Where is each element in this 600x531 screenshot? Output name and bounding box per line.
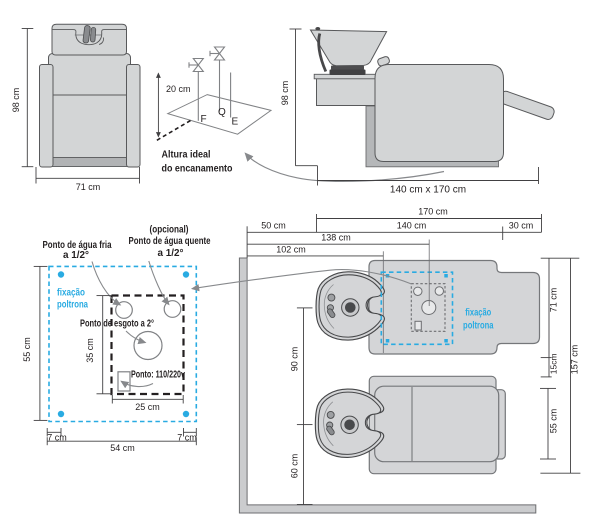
svg-text:102 cm: 102 cm xyxy=(276,244,306,254)
svg-text:poltrona: poltrona xyxy=(463,321,494,332)
svg-text:35 cm: 35 cm xyxy=(85,338,95,363)
svg-text:54 cm: 54 cm xyxy=(110,443,135,453)
svg-text:20 cm: 20 cm xyxy=(166,84,191,94)
svg-text:Ponto de esgoto a 2°: Ponto de esgoto a 2° xyxy=(80,319,154,330)
svg-text:98 cm: 98 cm xyxy=(11,88,21,113)
svg-text:25 cm: 25 cm xyxy=(135,402,160,412)
svg-text:138 cm: 138 cm xyxy=(321,233,351,243)
svg-text:(opcional): (opcional) xyxy=(150,225,189,236)
svg-text:90 cm: 90 cm xyxy=(290,347,300,372)
svg-text:30 cm: 30 cm xyxy=(509,221,534,231)
svg-text:60 cm: 60 cm xyxy=(290,454,300,479)
svg-text:157 cm: 157 cm xyxy=(570,345,580,375)
svg-text:170 cm: 170 cm xyxy=(418,207,448,217)
svg-text:71 cm: 71 cm xyxy=(549,288,559,313)
svg-text:50 cm: 50 cm xyxy=(261,221,286,231)
svg-text:140 cm: 140 cm xyxy=(397,221,427,231)
svg-text:a 1/2°: a 1/2° xyxy=(158,248,184,259)
svg-text:fixação: fixação xyxy=(465,308,491,319)
svg-text:fixação: fixação xyxy=(57,288,85,299)
svg-text:F: F xyxy=(201,114,207,125)
svg-text:55 cm: 55 cm xyxy=(22,337,32,362)
svg-text:55 cm: 55 cm xyxy=(549,409,559,434)
svg-text:98 cm: 98 cm xyxy=(280,81,290,106)
svg-text:71 cm: 71 cm xyxy=(76,182,101,192)
svg-text:E: E xyxy=(232,117,239,128)
svg-text:Q: Q xyxy=(218,107,226,118)
svg-text:Ponto de água quente: Ponto de água quente xyxy=(129,236,211,247)
svg-text:do encanamento: do encanamento xyxy=(162,164,233,175)
svg-text:poltrona: poltrona xyxy=(57,300,88,311)
svg-text:Ponto: 110/220v: Ponto: 110/220v xyxy=(131,370,185,381)
svg-text:Altura ideal: Altura ideal xyxy=(162,150,211,161)
svg-text:140 cm x 170 cm: 140 cm x 170 cm xyxy=(390,185,466,196)
svg-text:a 1/2°: a 1/2° xyxy=(63,250,89,261)
svg-text:15cm: 15cm xyxy=(549,353,559,374)
